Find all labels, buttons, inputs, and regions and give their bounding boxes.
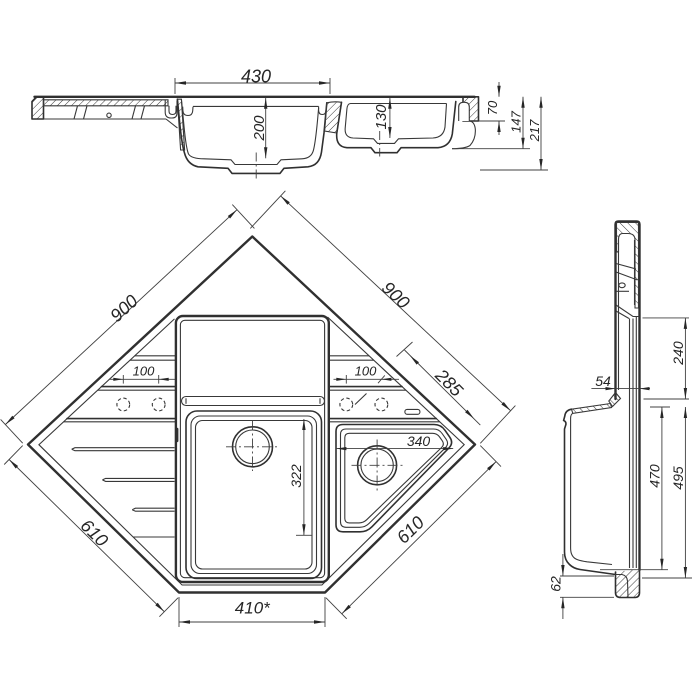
svg-text:200: 200 — [251, 115, 268, 142]
svg-text:217: 217 — [527, 119, 542, 142]
svg-text:70: 70 — [485, 100, 500, 115]
svg-text:54: 54 — [595, 373, 611, 389]
svg-text:470: 470 — [647, 464, 663, 488]
svg-text:410*: 410* — [235, 599, 271, 618]
svg-text:130: 130 — [373, 104, 390, 130]
svg-text:62: 62 — [548, 576, 564, 592]
svg-text:240: 240 — [670, 341, 686, 366]
svg-text:340: 340 — [407, 433, 431, 449]
svg-text:100: 100 — [133, 364, 155, 379]
svg-text:147: 147 — [509, 110, 524, 132]
svg-text:322: 322 — [288, 464, 304, 488]
svg-text:495: 495 — [670, 466, 686, 490]
svg-text:430: 430 — [241, 67, 271, 87]
svg-text:100: 100 — [355, 364, 377, 379]
